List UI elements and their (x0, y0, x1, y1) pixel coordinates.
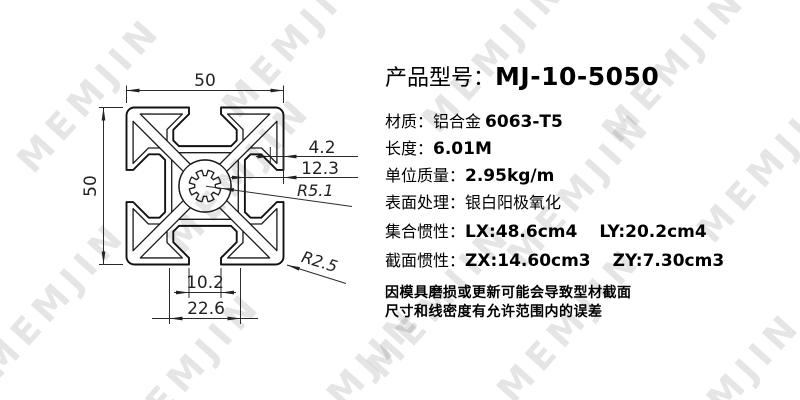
spec-panel: 产品型号：MJ-10-5050 材质：铝合金 6063-T5 长度：6.01M … (385, 0, 795, 400)
spec-section-modulus: 截面惯性：ZX:14.60cm3ZY:7.30cm3 (385, 247, 724, 271)
tolerance-note-line1: 因模具磨损或更新可能会导致型材截面 (385, 284, 632, 303)
spec-moment-inertia-ly: LY:20.2cm4 (599, 222, 706, 242)
dim-overall-height: 50 (81, 175, 101, 197)
dim-center-bore-radius: R5.1 (297, 181, 334, 200)
dim-slot-inner-width: 22.6 (187, 299, 225, 319)
spec-material-label: 材质： (385, 114, 433, 131)
product-model: MJ-10-5050 (495, 62, 659, 91)
spec-moment-inertia: 集合惯性：LX:48.6cm4LY:20.2cm4 (385, 218, 707, 242)
spec-moment-inertia-lx: LX:48.6cm4 (465, 222, 577, 242)
spec-section-modulus-label: 截面惯性： (385, 253, 465, 270)
datasheet-page: MEMJIN MEMJIN MEMJIN MEMJIN MEMJIN MEMJI… (0, 0, 800, 400)
dimension-labels: 50 50 4.2 12.3 R5.1 R2.5 10.2 22.6 (81, 71, 340, 319)
dim-slot-depth: 12.3 (301, 159, 339, 179)
spec-unit-weight: 单位质量：2.95kg/m (385, 162, 554, 186)
spec-surface-label: 表面处理： (385, 195, 465, 212)
product-title: 产品型号：MJ-10-5050 (385, 60, 659, 92)
profile-drawing: 50 50 4.2 12.3 R5.1 R2.5 10.2 22.6 (0, 0, 400, 400)
product-title-label: 产品型号： (385, 65, 495, 90)
profile-outline (127, 108, 284, 265)
tolerance-note: 因模具磨损或更新可能会导致型材截面 尺寸和线密度有允许范围内的误差 (385, 284, 632, 322)
tolerance-note-line2: 尺寸和线密度有允许范围内的误差 (385, 303, 632, 322)
profile-cross-section (127, 108, 284, 265)
spec-section-modulus-zx: ZX:14.60cm3 (465, 251, 591, 271)
spec-material: 材质：铝合金 6063-T5 (385, 108, 563, 132)
spec-surface: 表面处理：银白阳极氧化 (385, 189, 561, 213)
dim-overall-width: 50 (194, 71, 216, 91)
dim-slot-opening: 10.2 (186, 273, 224, 293)
spec-length-label: 长度： (385, 141, 433, 158)
spec-material-value: 6063-T5 (485, 112, 563, 132)
dim-flange-thickness: 4.2 (308, 138, 335, 158)
spec-unit-weight-label: 单位质量： (385, 168, 465, 185)
core-ring (179, 160, 231, 212)
spec-unit-weight-value: 2.95kg/m (465, 166, 554, 186)
spec-length: 长度：6.01M (385, 135, 492, 159)
dim-corner-radius: R2.5 (299, 247, 340, 276)
spec-surface-value: 银白阳极氧化 (465, 195, 561, 212)
spec-section-modulus-zy: ZY:7.30cm3 (613, 251, 725, 271)
spec-moment-inertia-label: 集合惯性： (385, 224, 465, 241)
spec-length-value: 6.01M (433, 139, 492, 159)
gear-bore (189, 170, 220, 201)
spec-material-cn: 铝合金 (433, 114, 485, 131)
